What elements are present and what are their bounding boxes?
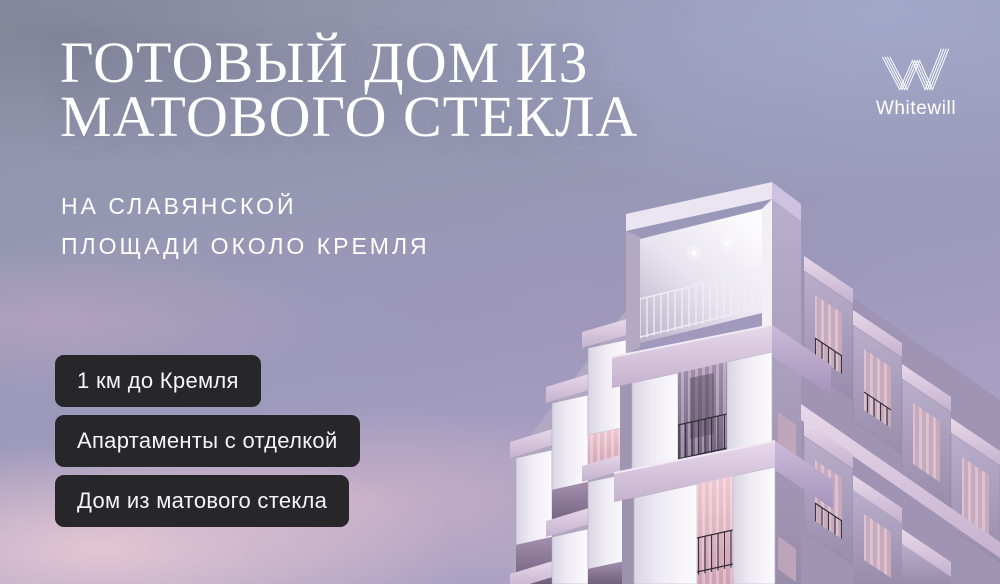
right-wing <box>772 200 1000 584</box>
badge-material: Дом из матового стекла <box>55 475 349 527</box>
striped-w-icon <box>879 46 953 95</box>
brand-name: Whitewill <box>853 98 979 120</box>
headline-line2: МАТОВОГО СТЕКЛА <box>60 90 638 144</box>
ceiling-light <box>692 251 697 256</box>
headline: ГОТОВЫЙ ДОМ ИЗ МАТОВОГО СТЕКЛА <box>60 36 638 144</box>
corner-tower <box>612 182 833 584</box>
subheadline-line1: НА СЛАВЯНСКОЙ <box>61 186 430 226</box>
ad-banner: ГОТОВЫЙ ДОМ ИЗ МАТОВОГО СТЕКЛА НА СЛАВЯН… <box>0 0 1000 584</box>
ceiling-light <box>725 241 730 246</box>
badge-distance: 1 км до Кремля <box>55 355 261 407</box>
subheadline-line2: ПЛОЩАДИ ОКОЛО КРЕМЛЯ <box>61 226 430 266</box>
feature-badges: 1 км до Кремля Апартаменты с отделкой До… <box>55 355 360 527</box>
headline-line1: ГОТОВЫЙ ДОМ ИЗ <box>60 36 638 90</box>
left-wing <box>510 305 630 584</box>
subheadline: НА СЛАВЯНСКОЙ ПЛОЩАДИ ОКОЛО КРЕМЛЯ <box>61 186 430 266</box>
corner-right-face <box>772 198 801 584</box>
brand-logo: Whitewill <box>853 46 979 120</box>
badge-finishing: Апартаменты с отделкой <box>55 415 360 467</box>
